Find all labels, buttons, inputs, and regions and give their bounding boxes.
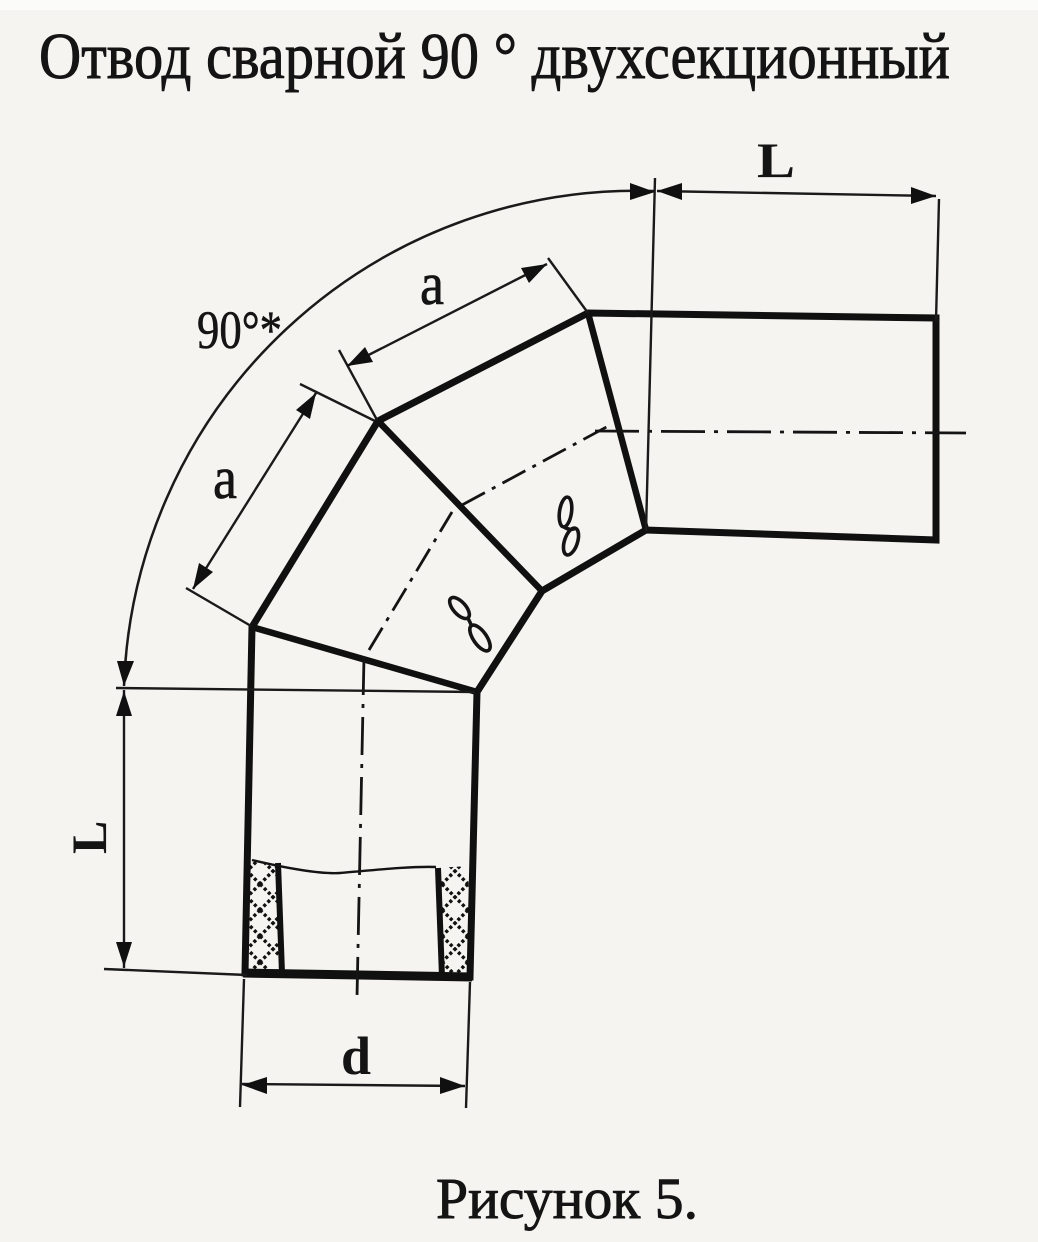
svg-text:Отвод сварной 90 ° двухсекцион: Отвод сварной 90 ° двухсекционный	[39, 20, 950, 93]
svg-text:90°*: 90°*	[197, 300, 282, 360]
svg-text:Рисунок 5.: Рисунок 5.	[436, 1166, 698, 1231]
svg-text:L: L	[61, 821, 117, 854]
svg-text:d: d	[341, 1026, 371, 1086]
svg-text:a: a	[213, 445, 237, 511]
svg-text:a: a	[420, 251, 444, 317]
svg-text:L: L	[757, 132, 795, 188]
